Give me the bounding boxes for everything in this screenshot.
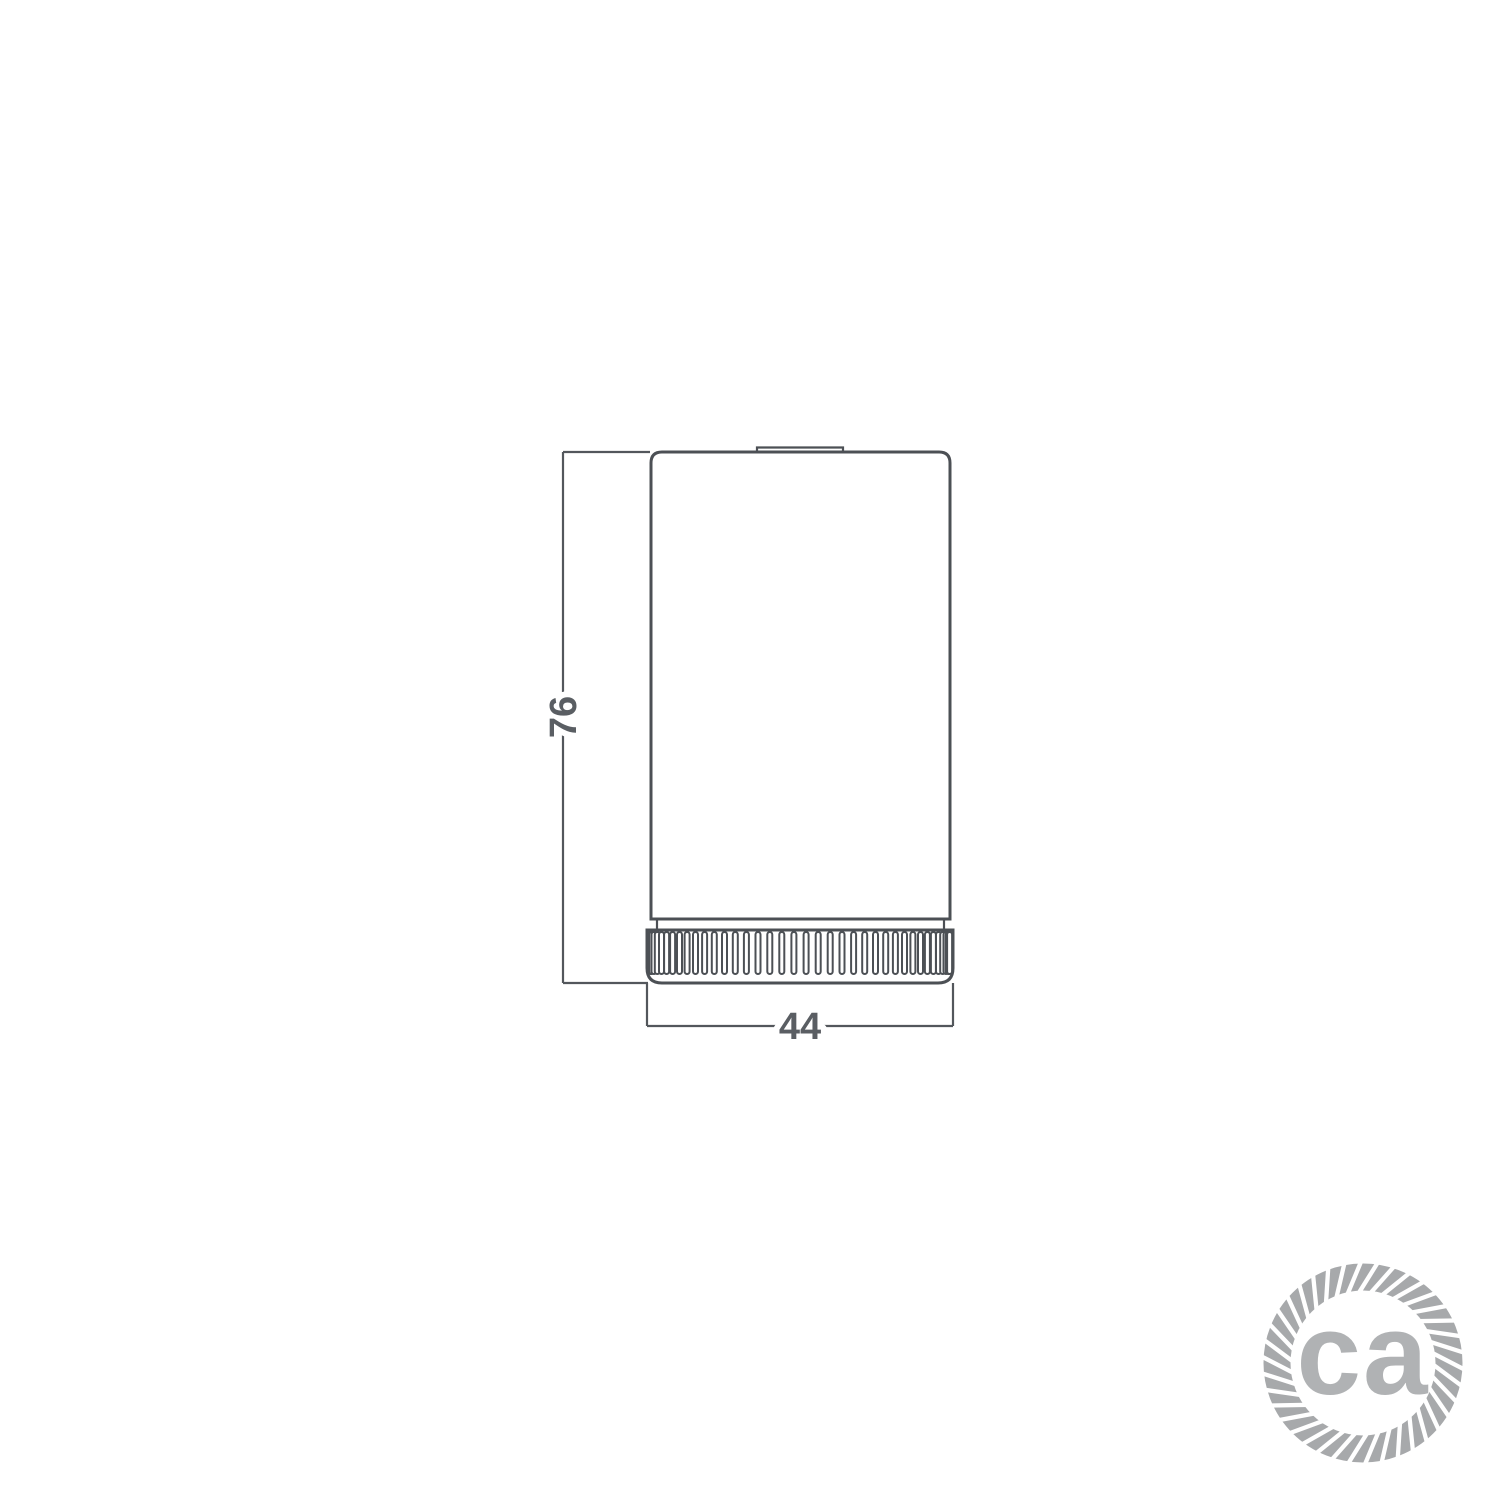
brand-logo: ca [1262,1262,1464,1464]
lamp-holder-drawing [647,448,953,984]
height-dimension: 76 [543,452,650,983]
page-canvas: 76 44 ca [0,0,1500,1500]
logo-text: ca [1296,1289,1429,1419]
width-dimension: 44 [647,983,953,1048]
height-dimension-value: 76 [543,696,585,738]
width-dimension-value: 44 [779,1006,821,1048]
cylinder-body-outline [651,452,950,919]
technical-drawing-svg: 76 44 ca [0,0,1500,1500]
